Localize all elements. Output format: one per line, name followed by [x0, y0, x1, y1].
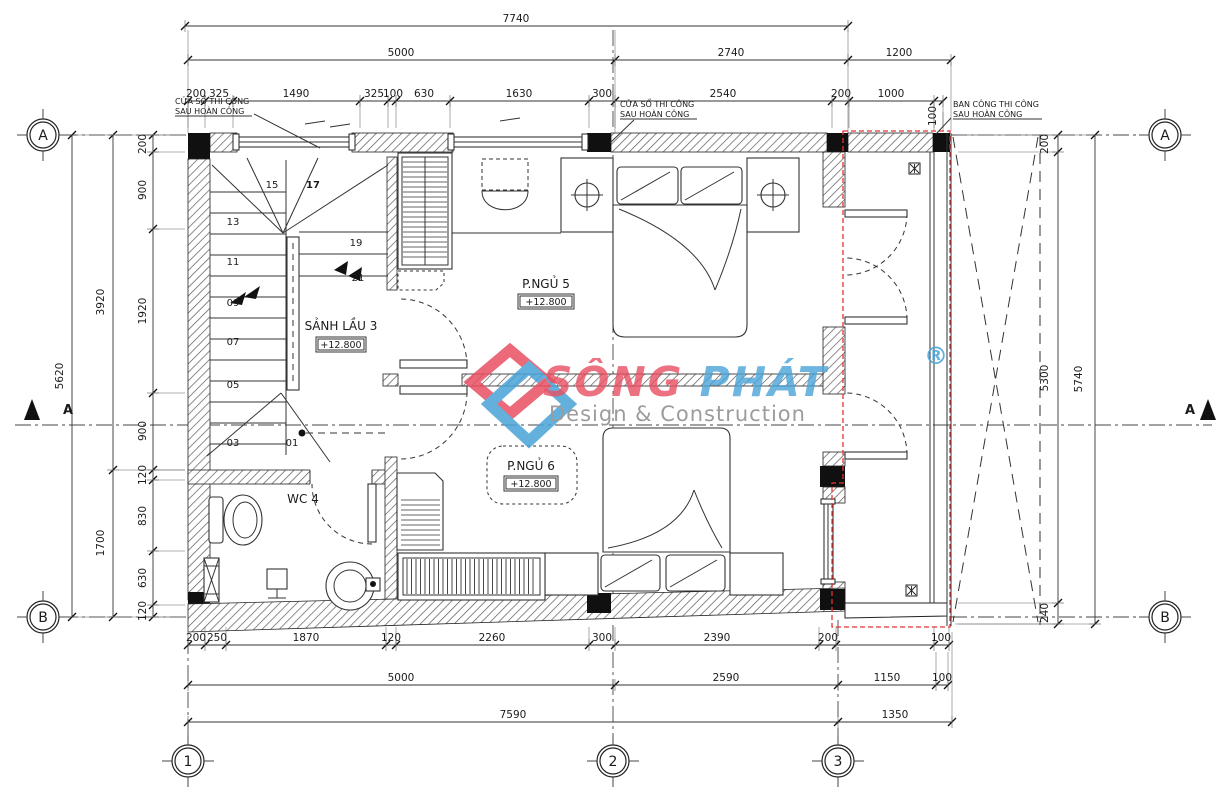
room-name-bedroom5: P.NGỦ 5 — [522, 275, 570, 291]
bed-double-5 — [613, 167, 747, 337]
registered-trademark-icon: ® — [924, 342, 948, 370]
dim-label: 2260 — [479, 632, 506, 644]
dim-label: 1490 — [283, 88, 310, 100]
door-bedroom6-swing — [400, 392, 467, 459]
chair — [482, 191, 528, 210]
logo-word-phat: PHÁT — [700, 358, 828, 406]
step-number: 19 — [350, 238, 363, 249]
logo-word-song: SÔNG — [543, 358, 683, 406]
dim-label: 1350 — [882, 709, 909, 721]
mattress — [603, 428, 730, 552]
room-level-bedroom6: +12.800 — [510, 479, 551, 490]
dim-label: 830 — [137, 506, 149, 526]
note-window-left-line2: SAU HOÀN CÔNG — [175, 105, 244, 116]
stair-start-dot — [299, 430, 306, 437]
note-balcony-line1: BAN CÔNG THI CÔNG — [953, 98, 1039, 109]
dim-label: 1700 — [95, 530, 107, 557]
dim-label: 630 — [137, 568, 149, 588]
dim-label: 1870 — [293, 632, 320, 644]
stair-direction-arrow-2 — [334, 261, 348, 275]
floor-plan-page: 7740 5000 2740 1200 200 325 1490 325 100… — [0, 0, 1227, 795]
dim-label: 100 — [932, 672, 952, 684]
room-name-hall: SẢNH LẦU 3 — [305, 317, 378, 333]
section-label-right: A — [1185, 403, 1195, 418]
shelf — [398, 271, 444, 290]
door-balcony-upper-leaf — [845, 210, 907, 217]
door-bedroom6-leaf — [400, 386, 467, 394]
door-wc-leaf — [368, 484, 376, 542]
note-window-mid-line2: SAU HOÀN CÔNG — [620, 108, 689, 119]
section-arrow-right — [1200, 399, 1216, 420]
dim-label: 900 — [137, 180, 149, 200]
grid-row-b-right: B — [1160, 610, 1170, 626]
wc-fixtures — [204, 495, 380, 610]
step-number: 15 — [266, 180, 279, 191]
window-right-wall — [821, 499, 835, 584]
dim-label: 120 — [137, 465, 149, 485]
room-level-bedroom5: +12.800 — [525, 297, 566, 308]
dim-label: 300 — [592, 632, 612, 644]
balcony — [832, 131, 1040, 627]
section-label-left: A — [63, 403, 73, 418]
windows — [233, 118, 835, 584]
dim-label: 1920 — [137, 298, 149, 325]
grid-row-b-left: B — [38, 610, 48, 626]
step-number: 17 — [306, 180, 320, 191]
desk — [482, 159, 528, 190]
dim-label: 2740 — [718, 47, 745, 59]
dim-label: 100 — [927, 106, 939, 126]
bedroom6-furniture — [397, 428, 783, 600]
step-number: 07 — [227, 337, 240, 348]
note-balcony-line2: SAU HOÀN CÔNG — [953, 108, 1022, 119]
logo-wordmark: SÔNG PHÁT — [543, 358, 828, 406]
door-wc-swing — [312, 484, 372, 544]
dim-label: 200 — [186, 632, 206, 644]
nightstand — [545, 553, 598, 595]
grid-row-a-right: A — [1160, 128, 1170, 144]
door-balcony-lower-leaf — [845, 317, 907, 324]
staircase — [207, 158, 388, 462]
dim-label: 5000 — [388, 672, 415, 684]
logo-tagline: Design & Construction — [549, 402, 806, 426]
step-number: 01 — [286, 438, 299, 449]
dim-label: 1000 — [878, 88, 905, 100]
step-number: 09 — [227, 298, 240, 309]
window-top-mid — [448, 118, 588, 150]
mattress — [613, 205, 747, 337]
grid-col-1: 1 — [184, 754, 193, 770]
balcony-outline-red — [832, 131, 950, 627]
dim-label: 200 — [1039, 134, 1051, 154]
door-bedroom5-swing — [400, 299, 467, 366]
dim-label: 7590 — [500, 709, 527, 721]
cabinet — [397, 473, 443, 550]
door-balcony6-leaf — [845, 452, 907, 459]
dim-label: 200 — [831, 88, 851, 100]
dim-label: 630 — [414, 88, 434, 100]
room-name-bedroom6: P.NGỦ 6 — [507, 457, 555, 473]
dim-label: 1150 — [874, 672, 901, 684]
step-number: 03 — [227, 438, 240, 449]
dim-top-overall: 7740 — [503, 13, 530, 25]
grid-row-a-left: A — [38, 128, 48, 144]
shower-m — [267, 569, 287, 589]
dim-label: 120 — [137, 601, 149, 621]
dim-label: 1630 — [506, 88, 533, 100]
dim-label: 200 — [137, 134, 149, 154]
dim-label: 900 — [137, 421, 149, 441]
dim-left-overall: 5620 — [54, 363, 66, 390]
dim-label: 1200 — [886, 47, 913, 59]
step-number: 05 — [227, 380, 240, 391]
dim-label: 3920 — [95, 289, 107, 316]
dim-label: 2390 — [704, 632, 731, 644]
dim-label: 5000 — [388, 47, 415, 59]
dim-label: 300 — [592, 88, 612, 100]
nightstand — [730, 553, 783, 595]
bed-double-6 — [601, 428, 730, 591]
room-level-hall: +12.800 — [320, 340, 361, 351]
step-number: 21 — [352, 273, 365, 284]
dim-label: 240 — [1039, 603, 1051, 623]
room-name-wc: WC 4 — [287, 492, 319, 506]
window-top-left — [233, 121, 355, 150]
dim-label: 100 — [931, 632, 951, 644]
step-number: 11 — [227, 257, 240, 268]
section-arrow-left — [24, 399, 40, 420]
dim-label: 5300 — [1039, 365, 1051, 392]
dim-label: 200 — [818, 632, 838, 644]
dim-label: 120 — [381, 632, 401, 644]
door-bedroom5-leaf — [400, 360, 467, 368]
dim-label: 325 — [364, 88, 384, 100]
grid-col-3: 3 — [834, 754, 843, 770]
dim-label: 2540 — [710, 88, 737, 100]
dim-label: 2590 — [713, 672, 740, 684]
toilet-tank — [209, 497, 223, 543]
note-window-mid-line1: CỬA SỔ THI CÔNG — [620, 97, 694, 109]
dim-right-overall: 5740 — [1073, 366, 1085, 393]
dim-label: 100 — [383, 88, 403, 100]
dim-label: 250 — [207, 632, 227, 644]
step-number: 13 — [227, 217, 240, 228]
grid-col-2: 2 — [609, 754, 618, 770]
